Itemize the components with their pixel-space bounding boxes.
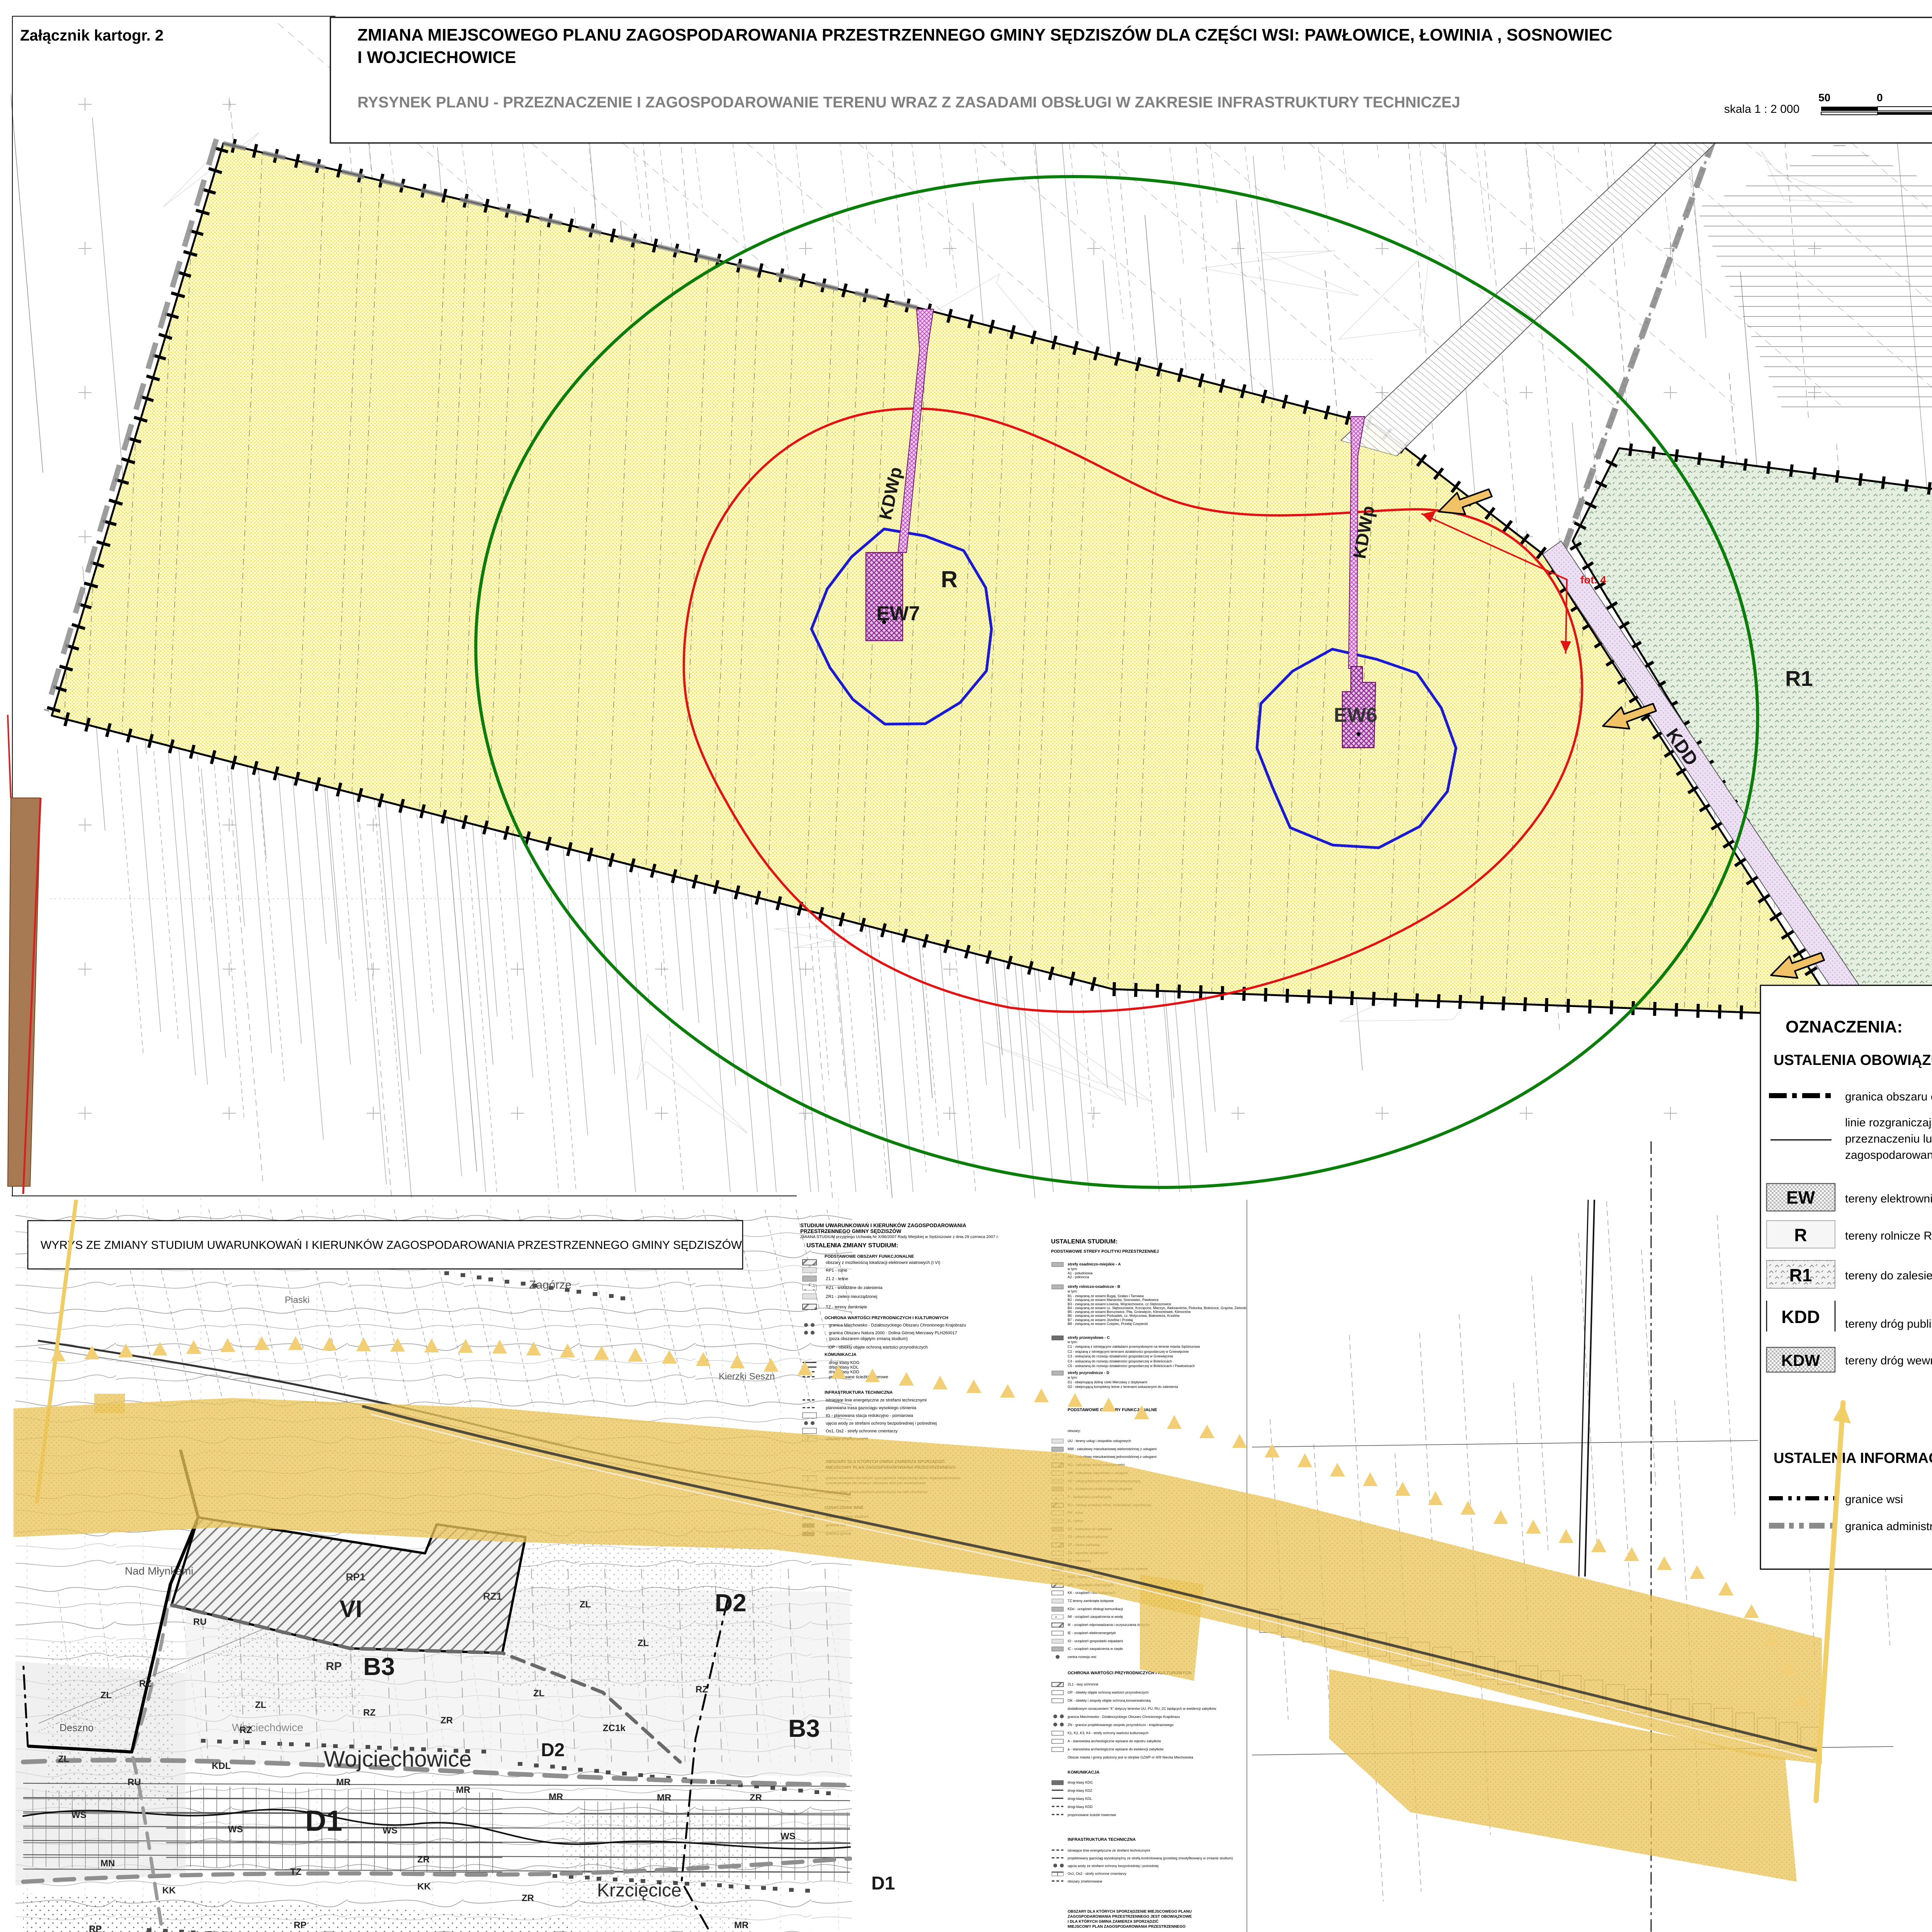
svg-text:OZNACZENIA:: OZNACZENIA: [1786, 1017, 1903, 1036]
svg-text:w tym:: w tym: [1067, 1340, 1078, 1344]
svg-text:KDo - urządzeń obsługi komunik: KDo - urządzeń obsługi komunikacji [1068, 1607, 1123, 1611]
svg-text:dodatkowym oznaczeniem "k" dot: dodatkowym oznaczeniem "k" dotyczy teren… [1068, 1707, 1216, 1711]
svg-text:RP1: RP1 [346, 1571, 366, 1583]
svg-text:RP: RP [294, 1920, 306, 1930]
svg-text:UU - tereny usług i zespołów u: UU - tereny usług i zespołów usługowych [1068, 1439, 1131, 1443]
svg-text:C2 - wiązaną z istniejącymi te: C2 - wiązaną z istniejącymi terenami dzi… [1068, 1350, 1189, 1354]
svg-text:RZ: RZ [363, 1708, 376, 1718]
svg-text:IW - urządzeń zaopatrzenia w w: IW - urządzeń zaopatrzenia w wodę [1068, 1615, 1123, 1619]
svg-text:TZ tereny zamknięte kolejowe: TZ tereny zamknięte kolejowe [1068, 1599, 1114, 1603]
svg-text:drogi klasy KDL: drogi klasy KDL [829, 1365, 859, 1370]
svg-text:ZL: ZL [58, 1754, 69, 1764]
svg-text:B4 - związaną ze wsiami cz. S: B4 - związaną ze wsiami cz. Słęboszowice… [1068, 1306, 1247, 1310]
svg-text:skala 1 : 2 000: skala 1 : 2 000 [1724, 103, 1799, 116]
svg-text:w tym:: w tym: [1067, 1289, 1078, 1293]
svg-text:IE - urządzeń elektroenergetyk: IE - urządzeń elektroenergetyki [1068, 1631, 1116, 1635]
svg-text:obszary:: obszary: [1068, 1429, 1081, 1433]
svg-text:D1: D1 [871, 1873, 895, 1894]
svg-text:K1, K2, K3, K4 - strefy ochron: K1, K2, K3, K4 - strefy ochrony wartości… [1068, 1731, 1148, 1735]
svg-text:IO - urządzeń gospodarki odpad: IO - urządzeń gospodarki odpadami [1068, 1639, 1123, 1643]
svg-text:ZMIANA MIEJSCOWEGO PLANU ZAGOS: ZMIANA MIEJSCOWEGO PLANU ZAGOSPODAROWANI… [357, 25, 1612, 44]
svg-text:Deszno: Deszno [60, 1722, 94, 1733]
svg-text:ZR: ZR [750, 1793, 762, 1803]
svg-text:IK - urządzeń odprowadzania i: IK - urządzeń odprowadzania i oczyszczan… [1068, 1623, 1150, 1627]
svg-text:VI: VI [340, 1596, 362, 1622]
svg-text:Kierzki Seszn: Kierzki Seszn [719, 1371, 775, 1382]
svg-text:centra rozwoju wsi: centra rozwoju wsi [1068, 1655, 1096, 1659]
svg-text:strefy przemysłowe - C: strefy przemysłowe - C [1068, 1336, 1110, 1340]
svg-text:TZ - tereny zamknięte: TZ - tereny zamknięte [826, 1305, 867, 1310]
svg-text:USTALENIA STUDIUM:: USTALENIA STUDIUM: [1051, 1238, 1117, 1245]
svg-text:drogi klasy KDL: drogi klasy KDL [1068, 1797, 1092, 1801]
svg-text:obszary zmeliorowane: obszary zmeliorowane [1068, 1879, 1102, 1883]
svg-text:tereny rolnicze R: tereny rolnicze R [1845, 1230, 1932, 1242]
svg-text:OK - obiekty i zespoły objęte: OK - obiekty i zespoły objęte ochroną ko… [1068, 1699, 1151, 1702]
svg-text:ujęcia wody ze strefami ochron: ujęcia wody ze strefami ochrony bezpośre… [826, 1421, 937, 1426]
svg-text:RU: RU [193, 1617, 207, 1627]
svg-text:D1 - obejmującą dolinę rzeki M: D1 - obejmującą dolinę rzeki Mierzawy z … [1068, 1380, 1147, 1384]
svg-text:B7 - związaną ze wsiami Józef: B7 - związaną ze wsiami Józefów i Przeła… [1068, 1318, 1133, 1322]
svg-text:D1: D1 [305, 1804, 342, 1837]
svg-text:tereny elektrowni wiatrowych E: tereny elektrowni wiatrowych EW6, EW7 [1845, 1192, 1932, 1205]
svg-text:MIEJSCOWY PLAN ZAGOSPODAROWANI: MIEJSCOWY PLAN ZAGOSPODAROWANIA PRZESTRZ… [1068, 1925, 1185, 1929]
svg-text:KDD: KDD [1781, 1307, 1820, 1327]
svg-text:KOMUNIKACJA: KOMUNIKACJA [825, 1352, 857, 1357]
svg-text:STUDIUM UWARUNKOWAŃ I KIERUNKÓ: STUDIUM UWARUNKOWAŃ I KIERUNKÓW ZAGOSPOD… [800, 1223, 966, 1228]
svg-text:fot. 4: fot. 4 [1580, 574, 1606, 586]
svg-text:drogi klasy KDD: drogi klasy KDD [829, 1370, 859, 1374]
svg-text:INFRASTRUKTURA TECHNICZNA: INFRASTRUKTURA TECHNICZNA [1068, 1837, 1136, 1842]
svg-text:ZL: ZL [533, 1688, 544, 1699]
svg-text:USTALENIA INFORMACYJNE: USTALENIA INFORMACYJNE [1774, 1450, 1932, 1466]
svg-text:OP - obiekty objęte ochroną wa: OP - obiekty objęte ochroną wartości prz… [1068, 1690, 1148, 1694]
svg-text:ZN - granice projektowanego ze: ZN - granice projektowanego zespołu przy… [1068, 1723, 1173, 1727]
svg-text:R: R [1794, 1225, 1807, 1245]
svg-text:w tym:: w tym: [1067, 1267, 1078, 1271]
svg-text:Wojciechowice: Wojciechowice [324, 1747, 472, 1772]
svg-text:zagospodarowania: zagospodarowania [1845, 1149, 1932, 1162]
svg-text:RZ1: RZ1 [483, 1590, 502, 1602]
svg-text:50: 50 [1818, 92, 1830, 104]
svg-text:Z1 2 - leśne: Z1 2 - leśne [826, 1277, 848, 1281]
svg-text:strefy rolniczo-osadnicze - B: strefy rolniczo-osadnicze - B [1068, 1285, 1120, 1289]
svg-text:w tym:: w tym: [1067, 1376, 1078, 1379]
svg-text:MR: MR [734, 1920, 748, 1930]
svg-text:I WOJCIECHOWICE: I WOJCIECHOWICE [357, 48, 516, 67]
svg-text:B1 - związaną ze wsiami Bugaj: B1 - związaną ze wsiami Bugaj, Szałas i … [1068, 1294, 1144, 1298]
svg-text:a - stanowiska archeologiczne: a - stanowiska archeologiczne wpisane do… [1068, 1747, 1164, 1751]
svg-text:ZMIANA STUDIUM przyjętego Uchw: ZMIANA STUDIUM przyjętego Uchwałą Nr X/9… [800, 1235, 999, 1239]
svg-text:tereny dróg publicznych dojazd: tereny dróg publicznych dojazdowych KDD [1845, 1318, 1932, 1330]
svg-text:Mierzyn: Mierzyn [309, 1929, 377, 1932]
svg-text:WYRYS ZE ZMIANY STUDIUM UWARUN: WYRYS ZE ZMIANY STUDIUM UWARUNKOWAŃ I KI… [41, 1239, 742, 1252]
svg-text:obszary z możliwością lokaliza: obszary z możliwością lokalizacji elektr… [826, 1260, 940, 1265]
svg-text:KOMUNIKACJA: KOMUNIKACJA [1068, 1770, 1100, 1775]
svg-text:OP - obiekty objęte ochroną wa: OP - obiekty objęte ochroną wartości prz… [829, 1345, 928, 1350]
svg-text:ZL: ZL [638, 1638, 649, 1648]
svg-text:MN: MN [100, 1858, 115, 1869]
svg-text:B3 - związaną ze wsiami Łowin: B3 - związaną ze wsiami Łowinia, Wojciec… [1068, 1302, 1171, 1306]
svg-text:USTALENIA OBOWIĄZUJĄCE: USTALENIA OBOWIĄZUJĄCE [1774, 1052, 1932, 1068]
svg-text:Piaski: Piaski [285, 1295, 310, 1305]
svg-text:KK: KK [162, 1885, 176, 1896]
svg-text:B3: B3 [788, 1714, 820, 1742]
svg-text:C4 - wskazaną do rozwoju dział: C4 - wskazaną do rozwoju działalności go… [1068, 1359, 1172, 1363]
svg-text:projektowany gazociąg wysokopr: projektowany gazociąg wysokoprężny ze st… [1068, 1856, 1233, 1860]
svg-text:PRZESTRZENNEGO GMINY SĘDZISZÓW: PRZESTRZENNEGO GMINY SĘDZISZÓW [800, 1228, 901, 1234]
svg-text:strefy przyrodnicze - D: strefy przyrodnicze - D [1068, 1371, 1109, 1375]
svg-text:RZ1 - wskazane do zalesienia: RZ1 - wskazane do zalesienia [826, 1286, 883, 1290]
svg-text:A2 - północna: A2 - północna [1068, 1275, 1089, 1279]
svg-text:R1: R1 [1785, 666, 1813, 690]
svg-text:WS: WS [228, 1824, 243, 1835]
svg-text:strefy osadniczo-miejskie - A: strefy osadniczo-miejskie - A [1068, 1262, 1121, 1267]
svg-text:Obszar miasta i gminy położony: Obszar miasta i gminy położony jest w ob… [1068, 1755, 1193, 1759]
svg-text:ZR: ZR [522, 1893, 534, 1903]
svg-text:ZL: ZL [100, 1690, 112, 1701]
svg-text:B2 - związaną ze wsiami Maria: B2 - związaną ze wsiami Marianów, Sosnow… [1068, 1298, 1159, 1302]
svg-text:drogi klasy KDZ: drogi klasy KDZ [1068, 1789, 1092, 1793]
svg-text:RP1 - rolne: RP1 - rolne [826, 1268, 847, 1273]
svg-text:planowana trasa gazociągu wyso: planowana trasa gazociągu wysokiego ciśn… [826, 1406, 917, 1410]
svg-text:KK: KK [417, 1881, 431, 1892]
svg-text:A1 - południowa: A1 - południowa [1068, 1271, 1093, 1275]
svg-text:RP: RP [326, 1660, 342, 1673]
svg-text:PODSTAWOWE STREFY POLITYKI PRZ: PODSTAWOWE STREFY POLITYKI PRZESTRZENNEJ [1051, 1249, 1159, 1254]
svg-text:B8 - związaną ze wsiami Czepi: B8 - związaną ze wsiami Czepiec, Przełaj… [1068, 1322, 1148, 1326]
svg-text:MW - zabudowy mieszkaniowej wi: MW - zabudowy mieszkaniowej wielorodzinn… [1068, 1447, 1157, 1451]
svg-text:RZ: RZ [240, 1725, 252, 1735]
svg-text:TZ: TZ [290, 1867, 301, 1877]
svg-text:tereny dróg wewnętrznych KDWp: tereny dróg wewnętrznych KDWp [1845, 1354, 1932, 1367]
svg-text:istniejące linie energetyczne: istniejące linie energetyczne ze strefam… [826, 1398, 927, 1403]
svg-text:(poza obszarem objętym zmianą: (poza obszarem objętym zmianą studium) [829, 1337, 908, 1341]
svg-text:ZC1k: ZC1k [603, 1723, 626, 1733]
svg-text:ZR: ZR [440, 1715, 453, 1726]
svg-text:WS: WS [383, 1825, 398, 1836]
svg-text:A - stanowiska archeologiczne: A - stanowiska archeologiczne wpisane do… [1068, 1739, 1161, 1743]
svg-text:Zagórze: Zagórze [529, 1279, 571, 1291]
svg-text:istniejące linie energetyczne: istniejące linie energetyczne ze strefam… [1068, 1849, 1150, 1852]
svg-text:ZR: ZR [417, 1854, 430, 1865]
svg-text:Nad Młynkami: Nad Młynkami [125, 1565, 193, 1577]
svg-text:KDL: KDL [212, 1761, 231, 1771]
svg-text:MR: MR [336, 1777, 350, 1787]
svg-text:proponowane ścieżki rowerowe: proponowane ścieżki rowerowe [1068, 1813, 1116, 1817]
svg-text:OBSZARY DLA KTÓRYCH SPORZĄDZEN: OBSZARY DLA KTÓRYCH SPORZĄDZENIE MIEJSCO… [1068, 1909, 1192, 1914]
svg-text:granice wsi: granice wsi [1845, 1493, 1903, 1506]
svg-text:granica administracyjna gminy: granica administracyjna gminy [1845, 1520, 1932, 1533]
svg-text:RP: RP [89, 1924, 102, 1932]
svg-text:tereny do zalesienia R1: tereny do zalesienia R1 [1845, 1269, 1932, 1282]
svg-text:WS: WS [781, 1831, 796, 1842]
svg-text:C1 - związaną z istniejącymi z: C1 - związaną z istniejącymi zakładami p… [1068, 1345, 1200, 1349]
svg-text:granica obszaru objętego plane: granica obszaru objętego planem [1845, 1090, 1932, 1103]
svg-text:EW6: EW6 [1334, 704, 1378, 726]
svg-text:Krzcięcice: Krzcięcice [597, 1880, 682, 1901]
svg-text:EW7: EW7 [876, 602, 920, 625]
svg-text:INFRASTRUKTURA TECHNICZNA: INFRASTRUKTURA TECHNICZNA [825, 1390, 893, 1395]
svg-text:Os1, Os2 - strefy ochronne cme: Os1, Os2 - strefy ochronne cmentarzy [826, 1429, 898, 1434]
svg-text:MR: MR [456, 1785, 470, 1795]
svg-text:MR: MR [657, 1793, 671, 1803]
svg-text:PODSTAWOWE OBSZARY FUNKCJONALN: PODSTAWOWE OBSZARY FUNKCJONALNE [825, 1254, 914, 1259]
svg-text:Os1, Os2 - strefy ochronne cme: Os1, Os2 - strefy ochronne cmentarzy [1068, 1872, 1127, 1876]
svg-text:R: R [941, 566, 957, 592]
svg-text:granica Miechowsko - Działoszy: granica Miechowsko - Działoszyckiego Obs… [829, 1323, 966, 1328]
svg-text:IC - urządzeń zaopatrzenia w c: IC - urządzeń zaopatrzenia w ciepło [1068, 1647, 1123, 1651]
svg-text:0: 0 [1877, 92, 1883, 104]
svg-text:B6 - związaną ze wsiami Podsa: B6 - związaną ze wsiami Podsadek, cz. Ms… [1068, 1314, 1180, 1318]
svg-text:ZL1 - lasy ochronne: ZL1 - lasy ochronne [1068, 1682, 1099, 1686]
svg-text:drogi klasy KDG: drogi klasy KDG [829, 1361, 859, 1365]
svg-text:EW: EW [1786, 1187, 1815, 1207]
svg-text:drogi klasy KDG: drogi klasy KDG [1068, 1781, 1093, 1784]
svg-text:ujęcia wody ze strefami ochron: ujęcia wody ze strefami ochrony bezpośre… [1068, 1864, 1158, 1868]
svg-text:granica Obszaru Natura 2000 -: granica Obszaru Natura 2000 - Dolina Gór… [829, 1331, 957, 1335]
svg-text:C5 - wskazaną do rozwoju dział: C5 - wskazaną do rozwoju działalności go… [1068, 1364, 1195, 1368]
svg-text:USTALENIA ZMIANY STUDIUM:: USTALENIA ZMIANY STUDIUM: [806, 1242, 898, 1249]
svg-text:D2: D2 [715, 1589, 747, 1617]
svg-text:RYSYNEK PLANU - PRZEZNACZENIE: RYSYNEK PLANU - PRZEZNACZENIE I ZAGOSPOD… [357, 94, 1460, 111]
svg-text:drogi klasy KDD: drogi klasy KDD [1068, 1805, 1093, 1809]
svg-text:I DLA KTÓRYCH GMINA ZAMIERZA S: I DLA KTÓRYCH GMINA ZAMIERZA SPORZĄDZIĆ [1068, 1919, 1158, 1924]
svg-text:OCHRONA WARTOŚCI PRZYRODNICZYC: OCHRONA WARTOŚCI PRZYRODNICZYCH I KULTUR… [825, 1315, 948, 1320]
svg-text:Załącznik kartogr. 2: Załącznik kartogr. 2 [20, 27, 163, 44]
svg-text:C3 - wskazaną do rozwoju dział: C3 - wskazaną do rozwoju działalności go… [1068, 1354, 1173, 1358]
svg-text:IG - planowana stacja redukcyj: IG - planowana stacja redukcyjno - pomia… [826, 1413, 913, 1418]
svg-text:R1: R1 [1789, 1265, 1812, 1285]
svg-text:granica Miechowsko - Działoszy: granica Miechowsko - Działoszyckiego Obs… [1068, 1715, 1180, 1719]
svg-text:ZL: ZL [255, 1700, 266, 1710]
svg-text:D2: D2 [541, 1740, 565, 1760]
svg-text:B3: B3 [363, 1653, 395, 1680]
svg-text:D2 - obejmującą kompleksy leśn: D2 - obejmującą kompleksy leśne z terena… [1068, 1385, 1178, 1389]
svg-text:RU: RU [128, 1777, 141, 1787]
svg-text:WS: WS [71, 1810, 87, 1820]
svg-text:ZR1 - zieleni nieurządzonej: ZR1 - zieleni nieurządzonej [826, 1294, 877, 1299]
svg-text:B5 - związaną ze wsiami Borsz: B5 - związaną ze wsiami Borszowice, Piła… [1068, 1310, 1191, 1314]
svg-text:MR: MR [549, 1792, 563, 1802]
svg-text:KDW: KDW [1781, 1351, 1820, 1369]
svg-text:RZ: RZ [696, 1684, 708, 1695]
svg-text:RZ: RZ [139, 1679, 151, 1689]
svg-text:ZAGOSPODAROWANIA PRZESTRZENNEG: ZAGOSPODAROWANIA PRZESTRZENNEGO JEST OBO… [1068, 1915, 1192, 1919]
svg-text:linie rozgraniczające tereny o: linie rozgraniczające tereny o różnym [1845, 1116, 1932, 1129]
svg-text:przeznaczeniu lub różnych zasa: przeznaczeniu lub różnych zasadach [1845, 1133, 1932, 1145]
svg-text:ZL: ZL [580, 1599, 591, 1610]
